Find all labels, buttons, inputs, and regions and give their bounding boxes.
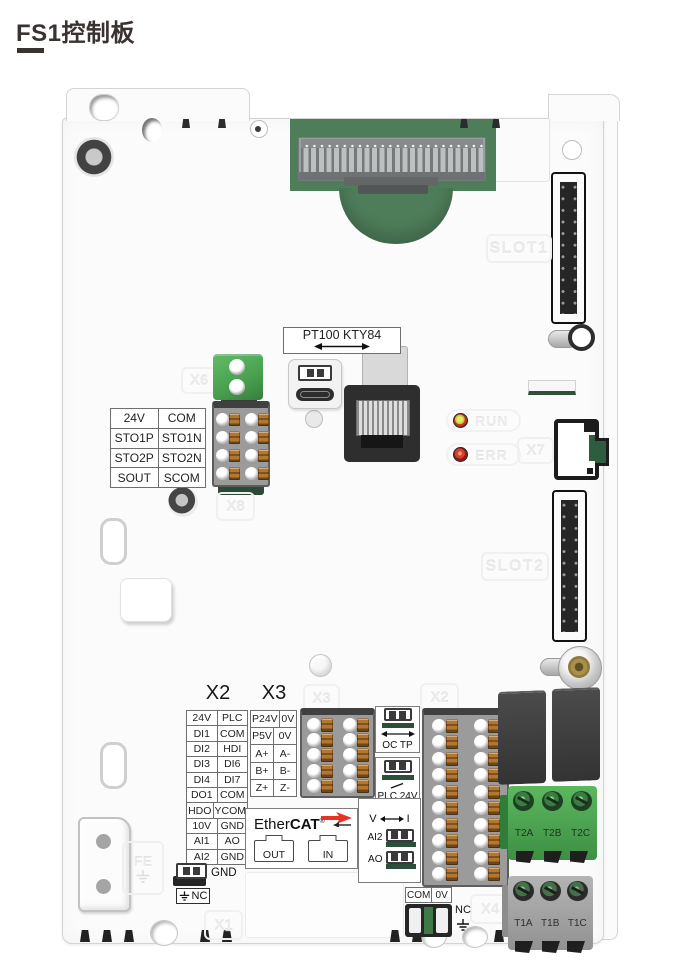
edge-notch: [182, 119, 190, 128]
table-cell: STO1N: [158, 429, 206, 448]
bracket-hole: [96, 834, 111, 849]
double-arrow-icon: [314, 342, 370, 351]
table-cell: AI2: [187, 850, 217, 864]
table-row: DI4DI7: [187, 772, 247, 787]
table-cell: DI6: [217, 757, 248, 771]
terminal-cell: [245, 413, 269, 426]
terminal-cell: [432, 719, 458, 733]
slot1-pin-header: [551, 172, 586, 324]
terminal-release-button: [474, 851, 488, 865]
relay-block: [498, 690, 546, 785]
terminal-clamp: [258, 413, 269, 426]
terminal-cell: [307, 718, 333, 732]
edge-notch: [492, 119, 500, 128]
terminal-cell: [474, 801, 500, 815]
brass-standoff: [568, 656, 590, 678]
t1-labels: T1AT1BT1C: [510, 918, 591, 929]
screw-terminal-icon: [513, 791, 534, 811]
table-cell: AO: [217, 834, 248, 848]
table-row: 10VGND: [187, 818, 247, 833]
dip-switch-icon: [386, 851, 414, 864]
terminal-release-button: [432, 851, 446, 865]
ethercat-in-port: IN: [308, 840, 348, 862]
table-cell: COM: [217, 726, 248, 740]
table-cell: GND: [217, 819, 248, 833]
terminal-cell: [474, 719, 500, 733]
dip-base: [386, 842, 416, 847]
ground-icon: [456, 919, 470, 932]
table-cell: STO2N: [158, 449, 206, 468]
housing-clip: [100, 518, 127, 565]
terminal-clamp: [321, 748, 333, 762]
table-row: DI2HDI: [187, 741, 247, 756]
terminal-cell: [216, 467, 240, 480]
screw-terminal-icon: [542, 791, 563, 811]
screw-hole: [250, 120, 268, 138]
board-top-tab: [66, 88, 250, 121]
terminal-release-button: [474, 719, 488, 733]
terminal-cell: [474, 768, 500, 782]
terminal-cell: [343, 748, 369, 762]
slot1-label: SLOT1: [486, 234, 552, 263]
terminal-release-button: [432, 867, 446, 881]
table-row: COM0V: [406, 888, 451, 902]
ao-label: AO: [364, 854, 383, 865]
sensor-select-label: PT100 KTY84: [303, 329, 382, 342]
x2-terminal-strip: [422, 708, 509, 887]
out-label: OUT: [263, 849, 285, 861]
x1-label: X1: [204, 910, 243, 940]
table-cell: 10V: [187, 819, 217, 833]
ethercat-logo: EtherCAT®: [254, 816, 325, 833]
dip-switch-icon: [384, 760, 412, 773]
terminal-label: T2B: [543, 828, 561, 839]
t2-labels: T2AT2BT2C: [510, 828, 595, 839]
terminal-cell: [432, 735, 458, 749]
rj45-connector: [344, 385, 420, 462]
terminal-clamp: [446, 851, 458, 865]
terminal-cell: [307, 748, 333, 762]
terminal-clamp: [229, 431, 240, 444]
com-0v-terminal: [405, 904, 452, 937]
table-row: A+A-: [251, 744, 296, 761]
table-cell: DI4: [187, 773, 217, 787]
terminal-release-button: [343, 733, 357, 747]
switch-lever-icon: [389, 782, 407, 789]
ground-icon-embossed: [135, 870, 151, 884]
x7-label: X7: [517, 437, 554, 464]
terminal-release-button: [216, 467, 229, 480]
housing-cutout: [120, 578, 172, 622]
x8-label: X8: [216, 492, 255, 521]
terminal-release-button: [216, 449, 229, 462]
table-cell: DO1: [187, 788, 217, 802]
ao-switch-row: AO: [364, 851, 416, 869]
terminal-cell: [307, 764, 333, 778]
terminal-label: T2A: [515, 828, 533, 839]
screw-terminal-icon: [571, 791, 592, 811]
terminal-release-button: [307, 718, 321, 732]
terminal-clamp: [357, 718, 369, 732]
table-row: B+B-: [251, 762, 296, 779]
table-cell: HDI: [217, 742, 248, 756]
terminal-slot: [436, 908, 448, 933]
v-label: V: [369, 813, 376, 825]
terminal-green-mid: [424, 907, 433, 934]
table-cell: 0V: [431, 888, 451, 902]
x3-terminal-strip: [300, 708, 375, 798]
terminal-cell: [307, 779, 333, 793]
terminal-hole: [229, 359, 245, 375]
terminal-clamp: [446, 735, 458, 749]
terminal-release-button: [216, 431, 229, 444]
terminal-cell: [474, 851, 500, 865]
plc-24v-switch-box: PLC 24V: [375, 757, 420, 804]
terminal-cell: [216, 431, 240, 444]
housing-clip: [100, 742, 127, 789]
terminal-release-button: [245, 467, 258, 480]
mounting-slot: [89, 94, 119, 121]
dip-base: [382, 775, 414, 780]
table-cell: B+: [251, 763, 273, 779]
terminal-release-button: [307, 733, 321, 747]
terminal-release-button: [245, 431, 258, 444]
x2-header: X2: [197, 682, 239, 705]
table-cell: GND: [217, 850, 248, 864]
mounting-hole: [142, 118, 162, 142]
usb-c-port: [296, 388, 334, 401]
nc-box-label: NC: [192, 890, 208, 902]
terminal-clamp: [229, 413, 240, 426]
terminal-cell: [432, 867, 458, 881]
relay-block: [552, 687, 600, 782]
terminal-cell: [216, 413, 240, 426]
terminal-cell: [432, 768, 458, 782]
terminal-slot: [409, 908, 421, 933]
x7-green-sliver: [589, 435, 595, 461]
terminal-clamp: [357, 748, 369, 762]
table-row: DO1COM: [187, 787, 247, 802]
table-cell: A-: [273, 745, 296, 761]
screw-terminal-icon: [513, 881, 534, 901]
table-cell: DI2: [187, 742, 217, 756]
table-row: DI3DI6: [187, 756, 247, 771]
double-arrow-icon: [380, 815, 404, 823]
rj45-slot: [361, 435, 403, 448]
terminal-release-button: [307, 764, 321, 778]
center-screw-hole: [309, 654, 332, 677]
terminal-clamp: [488, 818, 500, 832]
table-row: P24V0V: [251, 711, 296, 727]
oc-tp-label: OC TP: [382, 740, 412, 751]
ai2-label: AI2: [364, 832, 383, 843]
terminal-clamp: [446, 785, 458, 799]
x8-screw: [168, 487, 198, 517]
terminal-clamp: [321, 733, 333, 747]
nc-label: NC: [455, 904, 471, 916]
table-cell: 24V: [187, 711, 217, 725]
terminal-release-button: [432, 735, 446, 749]
terminal-release-button: [343, 748, 357, 762]
terminal-clamp: [488, 785, 500, 799]
table-cell: COM: [158, 409, 206, 428]
sto-table: 24VCOMSTO1PSTO1NSTO2PSTO2NSOUTSCOM: [110, 408, 206, 488]
slot2-label: SLOT2: [481, 552, 549, 581]
housing-step: [496, 119, 550, 182]
ethercat-out-port: OUT: [254, 840, 294, 862]
edge-cutout: [150, 920, 178, 946]
table-cell: SOUT: [111, 468, 158, 487]
terminal-release-button: [343, 718, 357, 732]
mounting-screw: [74, 137, 114, 177]
terminal-cell: [343, 718, 369, 732]
table-cell: AI1: [187, 834, 217, 848]
ethercat-box: EtherCAT® OUT IN: [245, 808, 358, 869]
err-led-icon: [453, 447, 468, 462]
sensor-select-label-box: PT100 KTY84: [283, 327, 401, 354]
terminal-clamp: [446, 752, 458, 766]
table-row: AI2GND: [187, 849, 247, 864]
terminal-release-button: [432, 818, 446, 832]
terminal-release-button: [307, 748, 321, 762]
dip-switch-icon: [384, 708, 412, 721]
table-cell: STO2P: [111, 449, 158, 468]
terminal-clamp: [229, 449, 240, 462]
table-cell: HDO: [187, 803, 213, 817]
edge-notch: [460, 119, 468, 128]
control-board-figure: SLOT1 PT100 KTY84 X6: [62, 88, 618, 960]
terminal-cell: [307, 733, 333, 747]
terminal-release-button: [432, 768, 446, 782]
x6-terminal: [213, 354, 263, 400]
terminal-clamp: [488, 867, 500, 881]
terminal-clamp: [446, 801, 458, 815]
terminal-release-button: [474, 752, 488, 766]
terminal-cell: [432, 801, 458, 815]
connector-comb: [301, 148, 483, 172]
terminal-cell: [245, 449, 269, 462]
run-indicator: RUN: [446, 409, 521, 432]
title-underline: [17, 48, 44, 53]
x6-label: X6: [181, 367, 217, 394]
slot2-pin-header: [552, 490, 587, 642]
screw-terminal-icon: [540, 881, 561, 901]
in-label: IN: [323, 849, 334, 861]
table-cell: PLC: [217, 711, 248, 725]
terminal-clamp: [446, 818, 458, 832]
connector-latch: [358, 185, 428, 194]
table-cell: P24V: [251, 711, 279, 727]
x7-cover-plate: [528, 380, 576, 395]
terminal-cell: [432, 752, 458, 766]
com-0v-table: COM0V: [405, 887, 452, 903]
table-row: Z+Z-: [251, 779, 296, 796]
terminal-cell: [474, 735, 500, 749]
table-row: DI1COM: [187, 725, 247, 740]
table-row: 24VPLC: [187, 711, 247, 725]
x2-table: 24VPLCDI1COMDI2HDIDI3DI6DI4DI7DO1COMHDOY…: [186, 710, 248, 865]
terminal-release-button: [343, 764, 357, 778]
ai2-switch-row: AI2: [364, 829, 416, 847]
terminal-cell: [343, 764, 369, 778]
sto-terminal-block: [212, 401, 270, 487]
terminal-release-button: [307, 779, 321, 793]
table-cell: 0V: [279, 711, 296, 727]
terminal-hole: [229, 379, 245, 395]
terminal-release-button: [245, 449, 258, 462]
nc-box: NC: [176, 888, 210, 904]
terminal-cell: [474, 785, 500, 799]
table-cell: COM: [406, 888, 431, 902]
run-led-icon: [453, 413, 468, 428]
x7-step: [584, 423, 595, 432]
terminal-tab: [515, 941, 533, 953]
screw-hole: [305, 410, 323, 428]
table-cell: DI7: [217, 773, 248, 787]
terminal-label: T1C: [568, 918, 587, 929]
terminal-label: T2C: [571, 828, 590, 839]
terminal-release-button: [474, 818, 488, 832]
terminal-release-button: [474, 801, 488, 815]
vi-switch-box: V I AI2 AO: [358, 798, 421, 883]
terminal-clamp: [446, 834, 458, 848]
double-arrow-icon: [381, 730, 415, 738]
terminal-release-button: [245, 413, 258, 426]
terminal-release-button: [432, 752, 446, 766]
x7-connector: [554, 419, 599, 480]
x7-dot: [587, 468, 593, 474]
table-cell: B-: [273, 763, 296, 779]
terminal-release-button: [432, 785, 446, 799]
ethercat-arrow-icon: [321, 811, 353, 827]
terminal-cell: [474, 834, 500, 848]
table-row: 24VCOM: [111, 409, 205, 428]
x3-header: X3: [253, 682, 295, 705]
table-cell: P5V: [251, 728, 273, 744]
terminal-clamp: [446, 719, 458, 733]
screw-terminal-icon: [567, 881, 588, 901]
dip-base: [382, 723, 414, 728]
terminal-release-button: [474, 834, 488, 848]
table-cell: SCOM: [158, 468, 206, 487]
terminal-clamp: [229, 467, 240, 480]
dip-base: [386, 864, 416, 869]
terminal-cell: [432, 818, 458, 832]
table-row: P5V0V: [251, 727, 296, 744]
rj45-contacts: [356, 400, 410, 436]
table-cell: STO1P: [111, 429, 158, 448]
terminal-clamp: [446, 867, 458, 881]
keyhole-mount: [568, 324, 595, 351]
err-label: ERR: [475, 447, 508, 463]
terminal-clamp: [488, 834, 500, 848]
board-top-right-tab: [548, 94, 620, 121]
gnd-label: GND: [211, 867, 237, 879]
x3-table: P24V0VP5V0VA+A-B+B-Z+Z-: [250, 710, 297, 797]
dip-switch-icon: [386, 829, 414, 842]
terminal-clamp: [258, 467, 269, 480]
terminal-release-button: [474, 735, 488, 749]
terminal-release-button: [474, 867, 488, 881]
i-label: I: [407, 813, 410, 825]
sensor-dip-widget: [288, 359, 342, 409]
terminal-release-button: [474, 768, 488, 782]
fe-label: FE: [134, 853, 152, 869]
connector-pins-icon: [301, 139, 483, 148]
table-cell: COM: [217, 788, 248, 802]
terminal-release-button: [216, 413, 229, 426]
edge-notch: [218, 119, 226, 128]
terminal-clamp: [258, 431, 269, 444]
table-row: STO2PSTO2N: [111, 448, 205, 468]
terminal-cell: [343, 733, 369, 747]
terminal-release-button: [343, 779, 357, 793]
terminal-clamp: [488, 801, 500, 815]
t1-relay-terminal: T1AT1BT1C: [508, 876, 593, 950]
terminal-clamp: [488, 851, 500, 865]
err-indicator: ERR: [446, 443, 521, 466]
terminal-cell: [216, 449, 240, 462]
terminal-label: T1B: [541, 918, 559, 929]
terminal-cell: [432, 834, 458, 848]
oc-tp-switch-box: OC TP: [375, 706, 420, 753]
table-row: STO1PSTO1N: [111, 428, 205, 448]
table-cell: Z+: [251, 780, 273, 796]
terminal-clamp: [446, 768, 458, 782]
terminal-clamp: [357, 764, 369, 778]
terminal-label: T1A: [514, 918, 532, 929]
screw-hole: [562, 140, 582, 160]
terminal-cell: [474, 818, 500, 832]
manual-figure-page: FS1控制板 SLOT1: [0, 0, 680, 977]
terminal-cell: [432, 785, 458, 799]
terminal-cell: [245, 431, 269, 444]
terminal-tab: [567, 941, 585, 953]
table-cell: Z-: [273, 780, 296, 796]
vi-header: V I: [369, 813, 409, 825]
ethercat-brand-bold: CAT: [290, 816, 320, 833]
page-title: FS1控制板: [16, 13, 135, 48]
terminal-clamp: [258, 449, 269, 462]
terminal-clamp: [321, 718, 333, 732]
table-row: AI1AO: [187, 833, 247, 848]
gnd-jumper-dip-icon: [176, 863, 207, 879]
table-cell: A+: [251, 745, 273, 761]
run-label: RUN: [475, 413, 508, 429]
x7-green-tab: [595, 438, 609, 466]
bracket-hole: [96, 879, 111, 894]
dip-switch-icon: [298, 365, 332, 381]
table-row: SOUTSCOM: [111, 467, 205, 487]
terminal-cell: [474, 752, 500, 766]
terminal-clamp: [321, 779, 333, 793]
table-cell: 24V: [111, 409, 158, 428]
table-row: HDOYCOM: [187, 802, 247, 817]
terminal-release-button: [474, 785, 488, 799]
terminal-tab: [542, 941, 560, 953]
terminal-cell: [432, 851, 458, 865]
table-cell: DI3: [187, 757, 217, 771]
table-cell: 0V: [273, 728, 296, 744]
terminal-clamp: [321, 764, 333, 778]
table-cell: YCOM: [213, 803, 248, 817]
terminal-clamp: [357, 733, 369, 747]
terminal-clamp: [357, 779, 369, 793]
terminal-release-button: [432, 834, 446, 848]
pcb-edge-connector: [298, 137, 486, 181]
ground-icon: [179, 891, 190, 902]
terminal-cell: [245, 467, 269, 480]
